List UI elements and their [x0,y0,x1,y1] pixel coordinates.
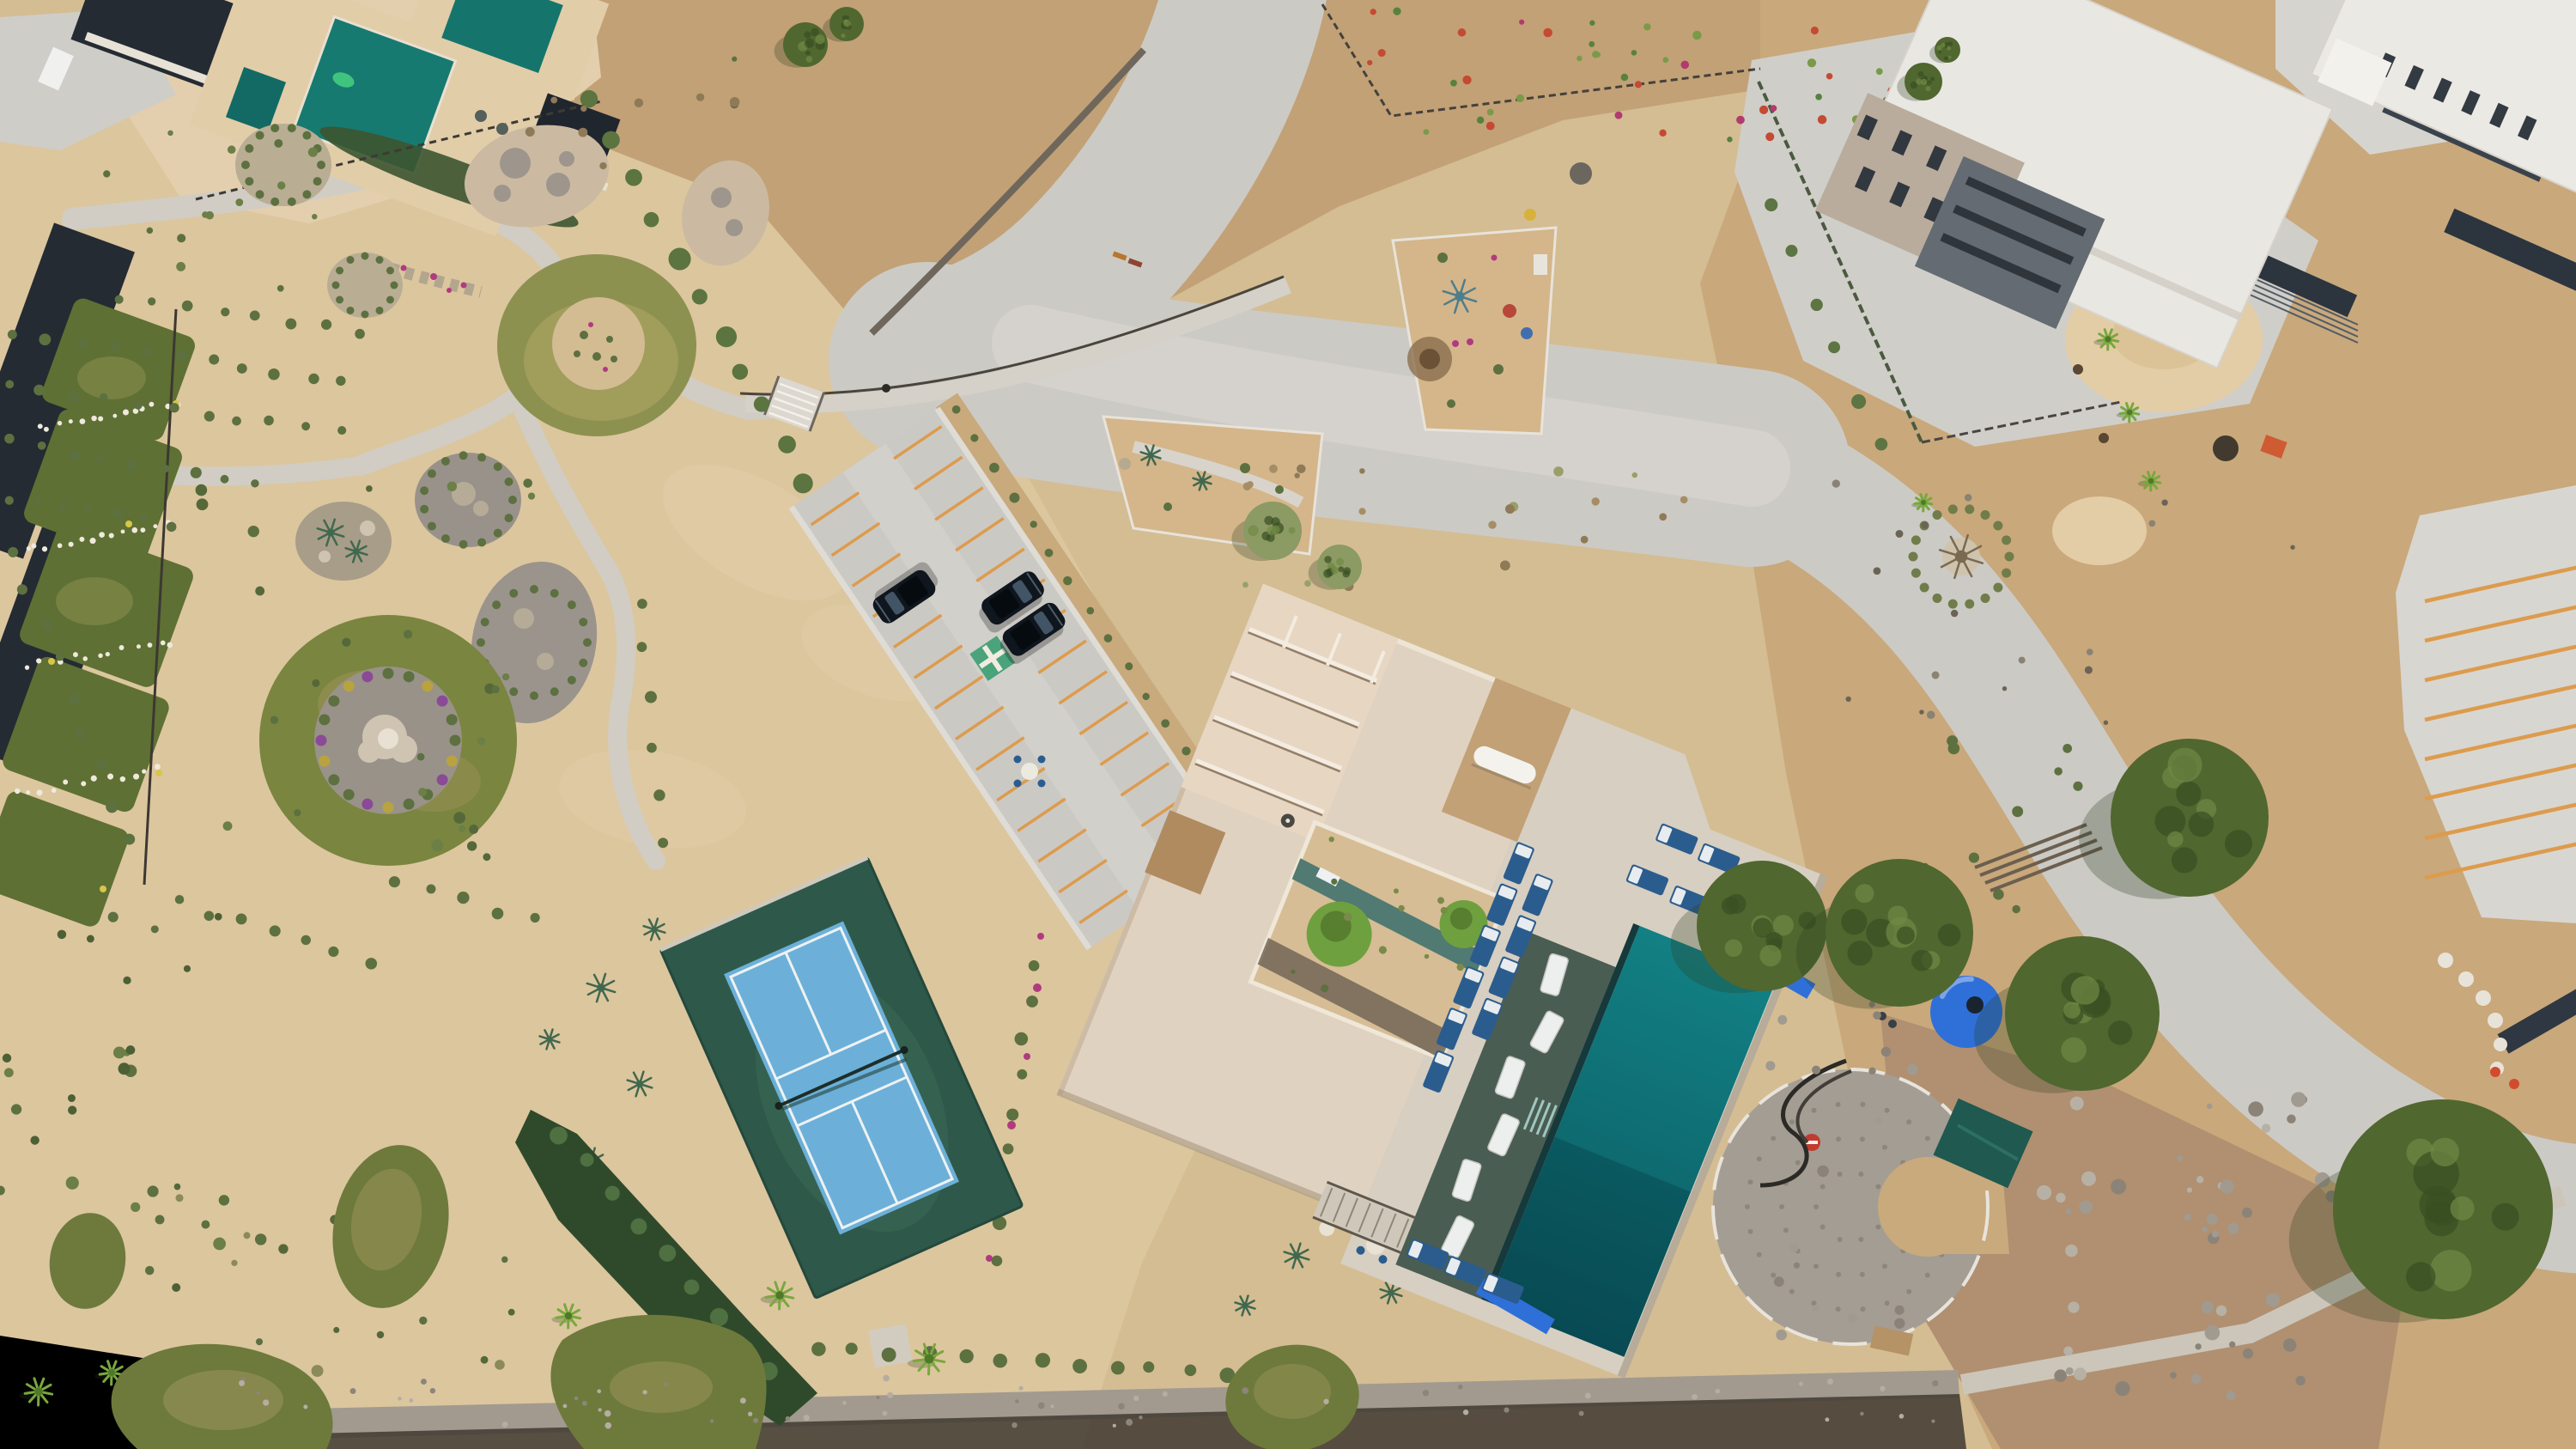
donut-center-sand [552,297,645,390]
pedestrian [882,384,890,393]
aerial-resort-photo [0,0,2576,1449]
dead-bush-core [1419,349,1440,369]
scrap-boards [1503,304,1516,318]
sign-board [1534,254,1547,275]
manhole [2213,435,2239,461]
center-rocks-light [378,728,398,749]
aerial-photo-stage [0,0,2576,1449]
turf-dry [1254,1364,1331,1419]
lawn-dry-patch [56,577,133,625]
patio-table [1021,763,1038,780]
aloe-bed [295,502,392,581]
road-manhole [1570,162,1592,185]
tank-lid [1966,996,1984,1014]
cart [1524,209,1536,221]
lawn-dry-patch [77,356,146,399]
scrap-boards [1521,327,1533,339]
turf-dry [610,1361,713,1413]
sand-pile [2052,496,2147,565]
